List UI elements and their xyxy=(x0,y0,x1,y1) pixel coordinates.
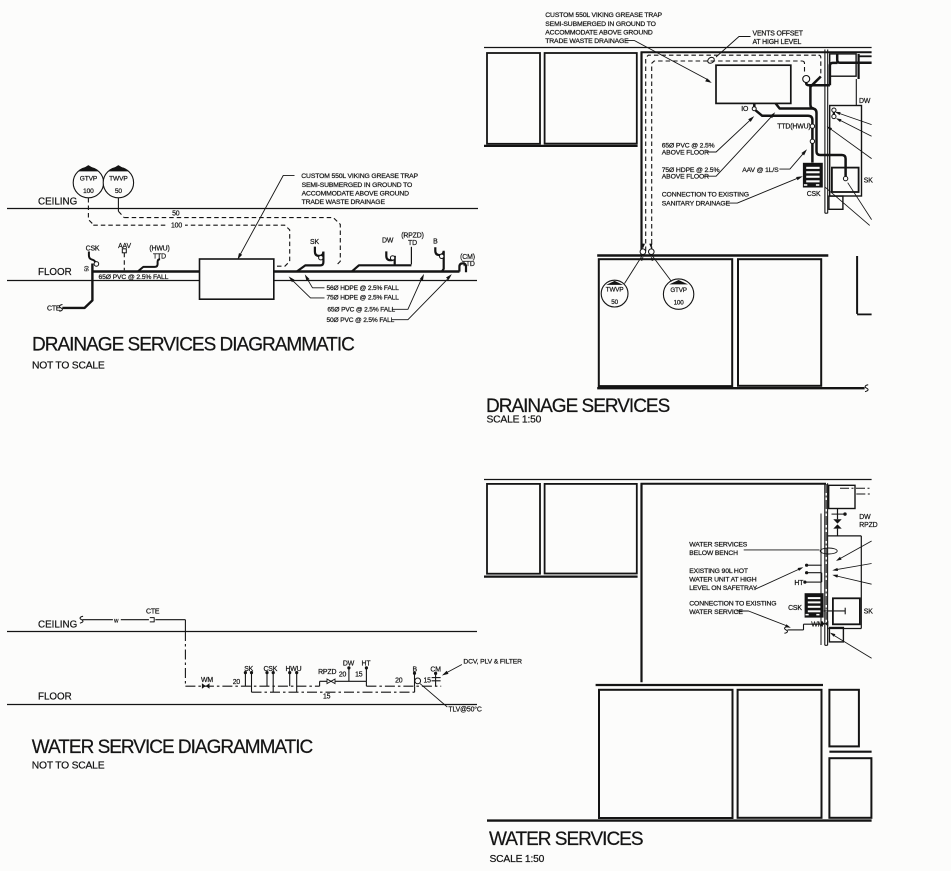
svg-text:20: 20 xyxy=(395,677,403,684)
svg-text:WM: WM xyxy=(811,622,823,629)
svg-text:CEILING: CEILING xyxy=(38,620,77,631)
svg-text:100: 100 xyxy=(674,300,685,307)
svg-text:WATER SERVICE DIAGRAMMATIC: WATER SERVICE DIAGRAMMATIC xyxy=(32,737,313,758)
svg-text:50: 50 xyxy=(611,299,618,306)
svg-text:CSK: CSK xyxy=(788,605,802,612)
svg-text:ABOVE FLOOR: ABOVE FLOOR xyxy=(662,173,709,180)
svg-text:LEVEL ON SAFETRAY: LEVEL ON SAFETRAY xyxy=(689,585,757,592)
svg-text:56Ø HDPE @ 2.5% FALL: 56Ø HDPE @ 2.5% FALL xyxy=(327,285,400,292)
svg-text:65Ø PVC @ 2.5% FALL: 65Ø PVC @ 2.5% FALL xyxy=(327,307,395,314)
svg-text:FLOOR: FLOOR xyxy=(38,691,72,702)
svg-text:WATER SERVICES: WATER SERVICES xyxy=(489,829,643,850)
svg-text:DRAINAGE SERVICES DIAGRAMMATIC: DRAINAGE SERVICES DIAGRAMMATIC xyxy=(32,335,354,356)
svg-text:HT: HT xyxy=(794,580,804,587)
svg-text:CUSTOM 550L VIKING GREASE TRAP: CUSTOM 550L VIKING GREASE TRAP xyxy=(301,173,418,180)
svg-text:CONNECTION TO EXISTING: CONNECTION TO EXISTING xyxy=(689,600,776,607)
svg-text:100: 100 xyxy=(171,223,182,230)
svg-text:50: 50 xyxy=(85,266,91,272)
svg-text:GTVP: GTVP xyxy=(80,175,98,182)
svg-text:CTE: CTE xyxy=(146,608,160,615)
svg-text:GTVP: GTVP xyxy=(670,287,687,294)
svg-text:TLV@50°C: TLV@50°C xyxy=(448,705,481,713)
svg-text:20: 20 xyxy=(339,671,347,678)
svg-text:SK: SK xyxy=(864,177,873,184)
svg-text:DCV, PLV & FILTER: DCV, PLV & FILTER xyxy=(463,658,522,665)
svg-text:50Ø PVC @ 2.5% FALL: 50Ø PVC @ 2.5% FALL xyxy=(327,317,395,324)
svg-text:50: 50 xyxy=(115,188,123,195)
svg-text:RPZD: RPZD xyxy=(318,669,336,676)
svg-text:15: 15 xyxy=(323,693,331,700)
svg-text:HWU: HWU xyxy=(285,666,301,673)
svg-text:CSK: CSK xyxy=(807,191,821,198)
svg-text:SK: SK xyxy=(310,239,319,246)
svg-text:SK: SK xyxy=(864,608,873,615)
svg-text:AT HIGH LEVEL: AT HIGH LEVEL xyxy=(753,39,802,46)
svg-text:CSK: CSK xyxy=(86,245,100,252)
svg-text:ACCOMMODATE ABOVE GROUND: ACCOMMODATE ABOVE GROUND xyxy=(545,29,653,36)
svg-text:WATER SERVICE: WATER SERVICE xyxy=(689,609,743,616)
svg-text:TRADE WASTE DRAINAGE: TRADE WASTE DRAINAGE xyxy=(545,38,629,45)
svg-text:WATER SERVICES: WATER SERVICES xyxy=(689,542,747,549)
svg-text:50: 50 xyxy=(172,210,180,217)
svg-text:20: 20 xyxy=(233,679,241,686)
svg-text:CSK: CSK xyxy=(263,666,277,673)
svg-text:WATER UNIT AT HIGH: WATER UNIT AT HIGH xyxy=(689,576,756,583)
svg-text:WM: WM xyxy=(201,677,213,684)
svg-text:FLOOR: FLOOR xyxy=(38,267,72,278)
svg-text:SEMI-SUBMERGED IN GROUND TO: SEMI-SUBMERGED IN GROUND TO xyxy=(545,21,656,28)
svg-text:15: 15 xyxy=(355,671,363,678)
svg-text:CONNECTION TO EXISTING: CONNECTION TO EXISTING xyxy=(662,192,749,199)
svg-text:SANITARY DRAINAGE: SANITARY DRAINAGE xyxy=(662,200,731,207)
svg-text:SCALE 1:50: SCALE 1:50 xyxy=(490,854,545,865)
svg-text:CUSTOM 550L VIKING GREASE TRAP: CUSTOM 550L VIKING GREASE TRAP xyxy=(545,12,662,19)
svg-text:BELOW BENCH: BELOW BENCH xyxy=(689,550,738,557)
svg-text:65Ø PVC @ 2.5% FALL: 65Ø PVC @ 2.5% FALL xyxy=(99,274,169,281)
svg-text:DW: DW xyxy=(859,514,871,521)
svg-text:(RPZD): (RPZD) xyxy=(401,233,423,240)
svg-text:AAV @ 1L/S: AAV @ 1L/S xyxy=(742,167,779,174)
svg-text:w: w xyxy=(113,617,119,624)
svg-text:SEMI-SUBMERGED IN GROUND TO: SEMI-SUBMERGED IN GROUND TO xyxy=(302,182,413,189)
svg-text:NOT TO SCALE: NOT TO SCALE xyxy=(32,360,105,371)
svg-text:IO: IO xyxy=(741,106,749,113)
svg-text:NOT TO SCALE: NOT TO SCALE xyxy=(32,760,105,771)
svg-text:TRADE WASTE DRAINAGE: TRADE WASTE DRAINAGE xyxy=(302,199,386,206)
svg-text:TTD(HWU): TTD(HWU) xyxy=(777,124,810,131)
svg-text:TWVP: TWVP xyxy=(109,175,128,182)
svg-text:ABOVE FLOOR: ABOVE FLOOR xyxy=(662,149,709,156)
svg-text:CTE: CTE xyxy=(47,305,61,312)
svg-text:EXISTING 90L HOT: EXISTING 90L HOT xyxy=(689,568,748,575)
svg-text:(HWU): (HWU) xyxy=(149,246,169,253)
svg-text:(CM): (CM) xyxy=(460,254,475,261)
svg-text:DW: DW xyxy=(382,238,394,245)
svg-text:DW: DW xyxy=(859,98,871,105)
svg-text:TD: TD xyxy=(408,240,417,247)
svg-text:75Ø HDPE @ 2.5% FALL: 75Ø HDPE @ 2.5% FALL xyxy=(327,295,400,302)
svg-text:15: 15 xyxy=(424,677,432,684)
svg-text:100: 100 xyxy=(83,188,94,195)
svg-text:RPZD: RPZD xyxy=(859,522,877,529)
svg-text:ACCOMMODATE ABOVE GROUND: ACCOMMODATE ABOVE GROUND xyxy=(302,190,410,197)
svg-text:CEILING: CEILING xyxy=(38,197,77,208)
svg-text:VENTS OFFSET: VENTS OFFSET xyxy=(753,30,804,37)
svg-text:SCALE 1:50: SCALE 1:50 xyxy=(487,414,542,425)
svg-text:TWVP: TWVP xyxy=(606,286,624,293)
svg-text:B: B xyxy=(433,239,438,246)
